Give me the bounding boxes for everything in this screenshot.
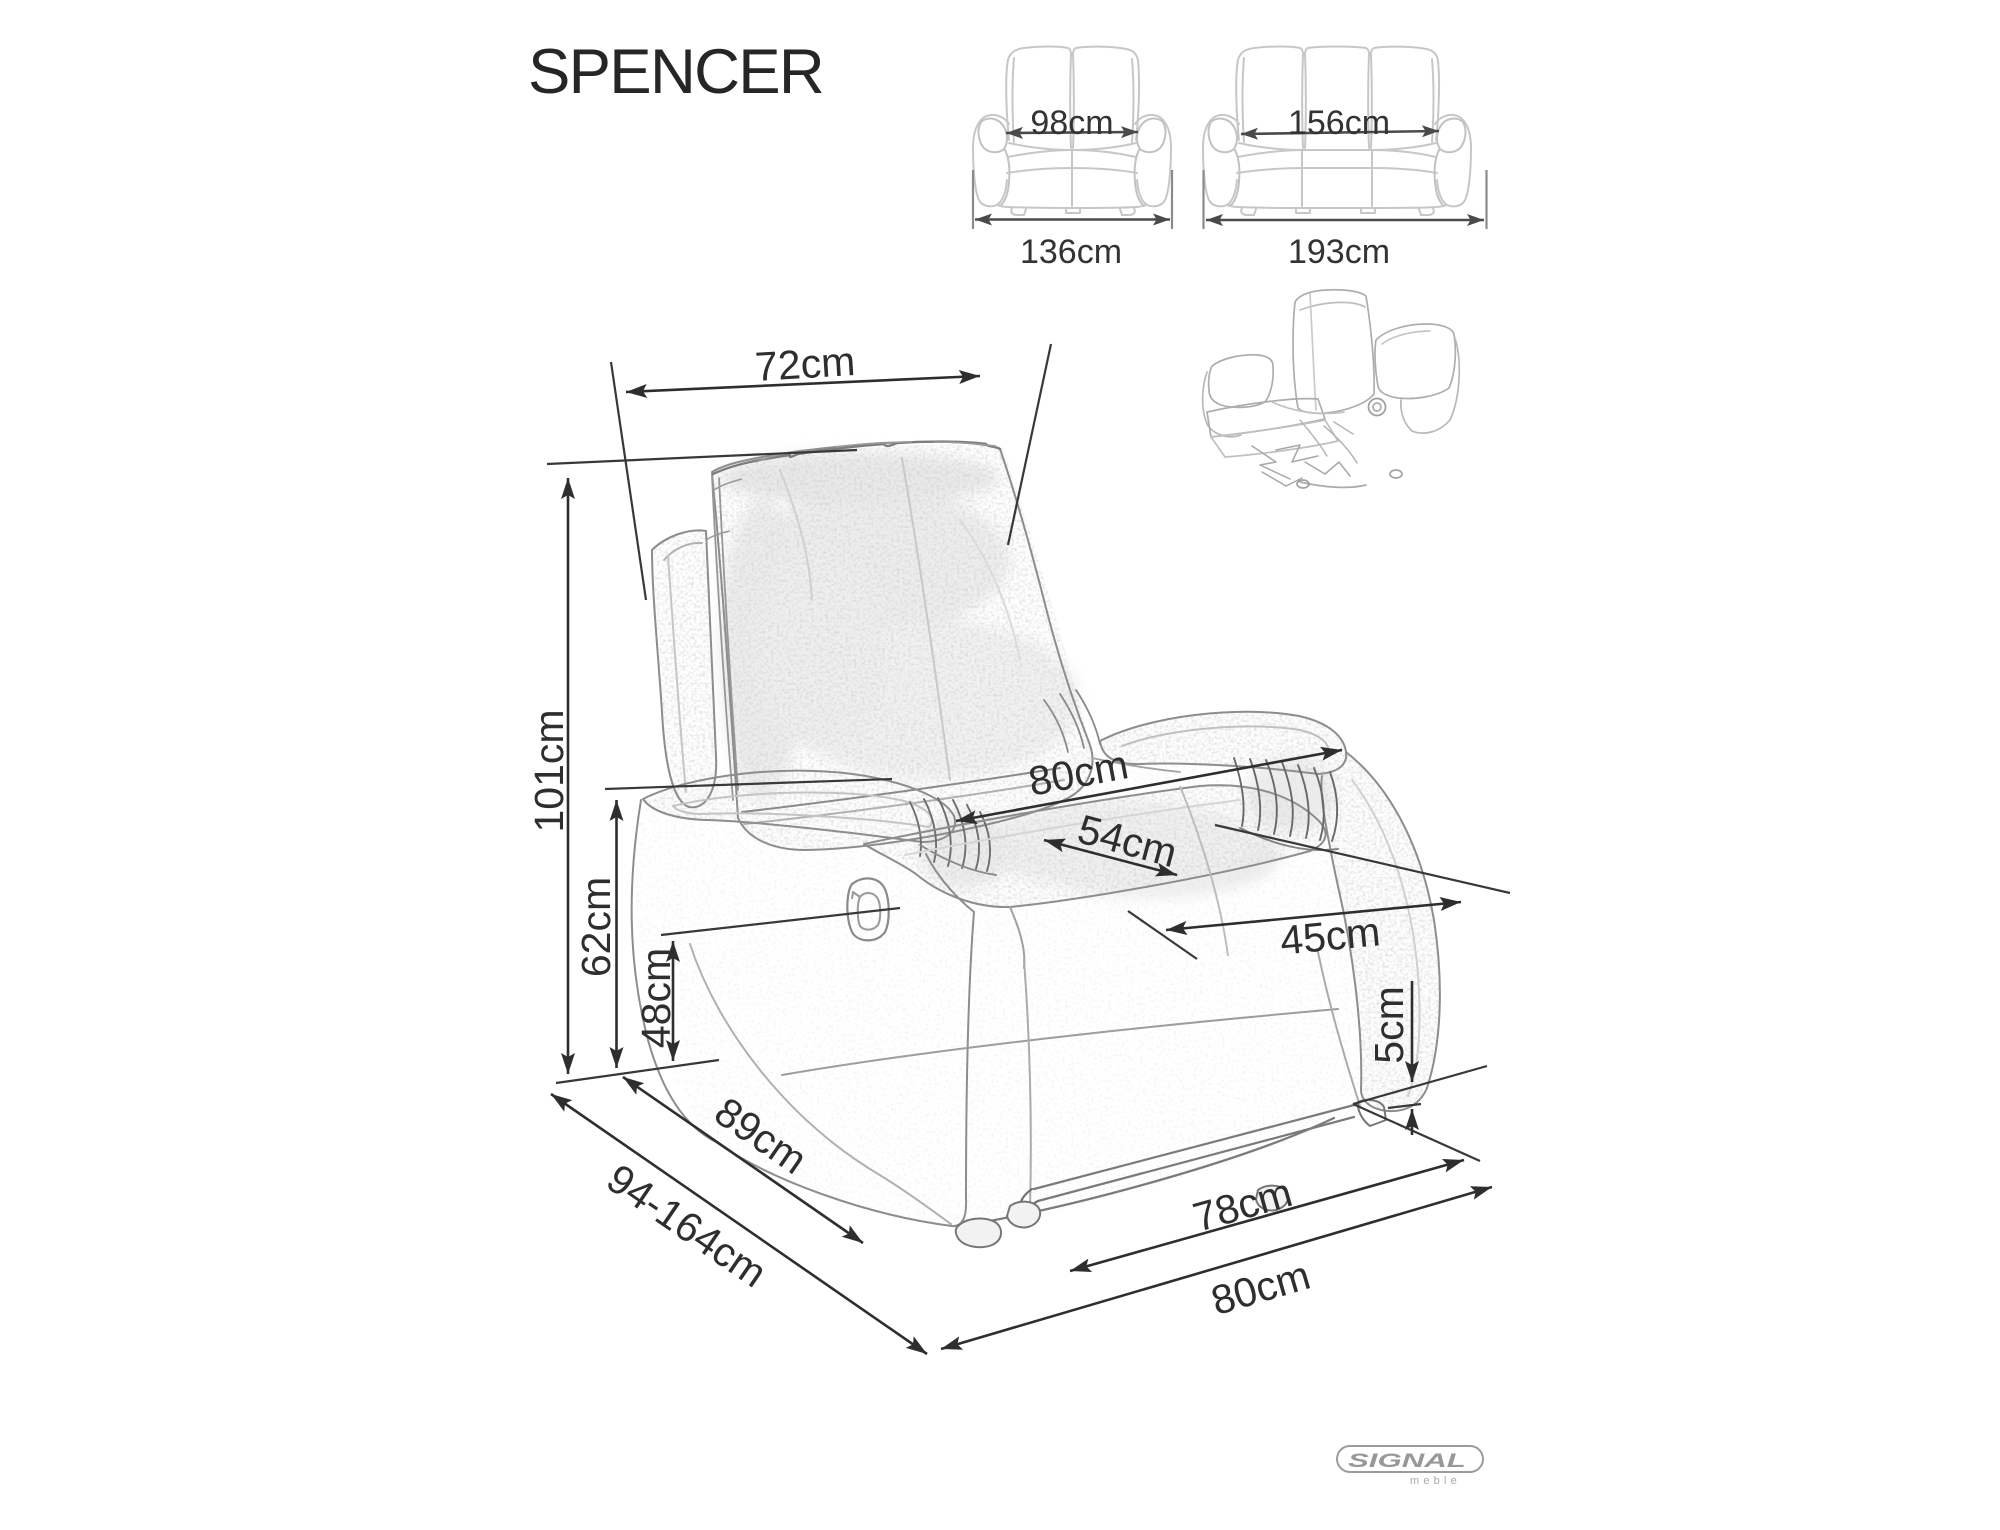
svg-text:101cm: 101cm [526,709,572,832]
svg-text:98cm: 98cm [1030,104,1113,142]
svg-text:SPENCER: SPENCER [528,37,823,107]
svg-text:48cm: 48cm [633,948,679,1048]
svg-text:SIGNAL: SIGNAL [1348,1449,1466,1471]
svg-text:193cm: 193cm [1288,233,1390,271]
svg-text:meble: meble [1410,1475,1461,1487]
svg-text:136cm: 136cm [1020,233,1122,271]
svg-text:156cm: 156cm [1288,104,1390,142]
svg-text:72cm: 72cm [754,338,857,390]
svg-text:45cm: 45cm [1278,908,1382,963]
svg-text:62cm: 62cm [573,877,619,977]
svg-text:5cm: 5cm [1366,986,1412,1063]
